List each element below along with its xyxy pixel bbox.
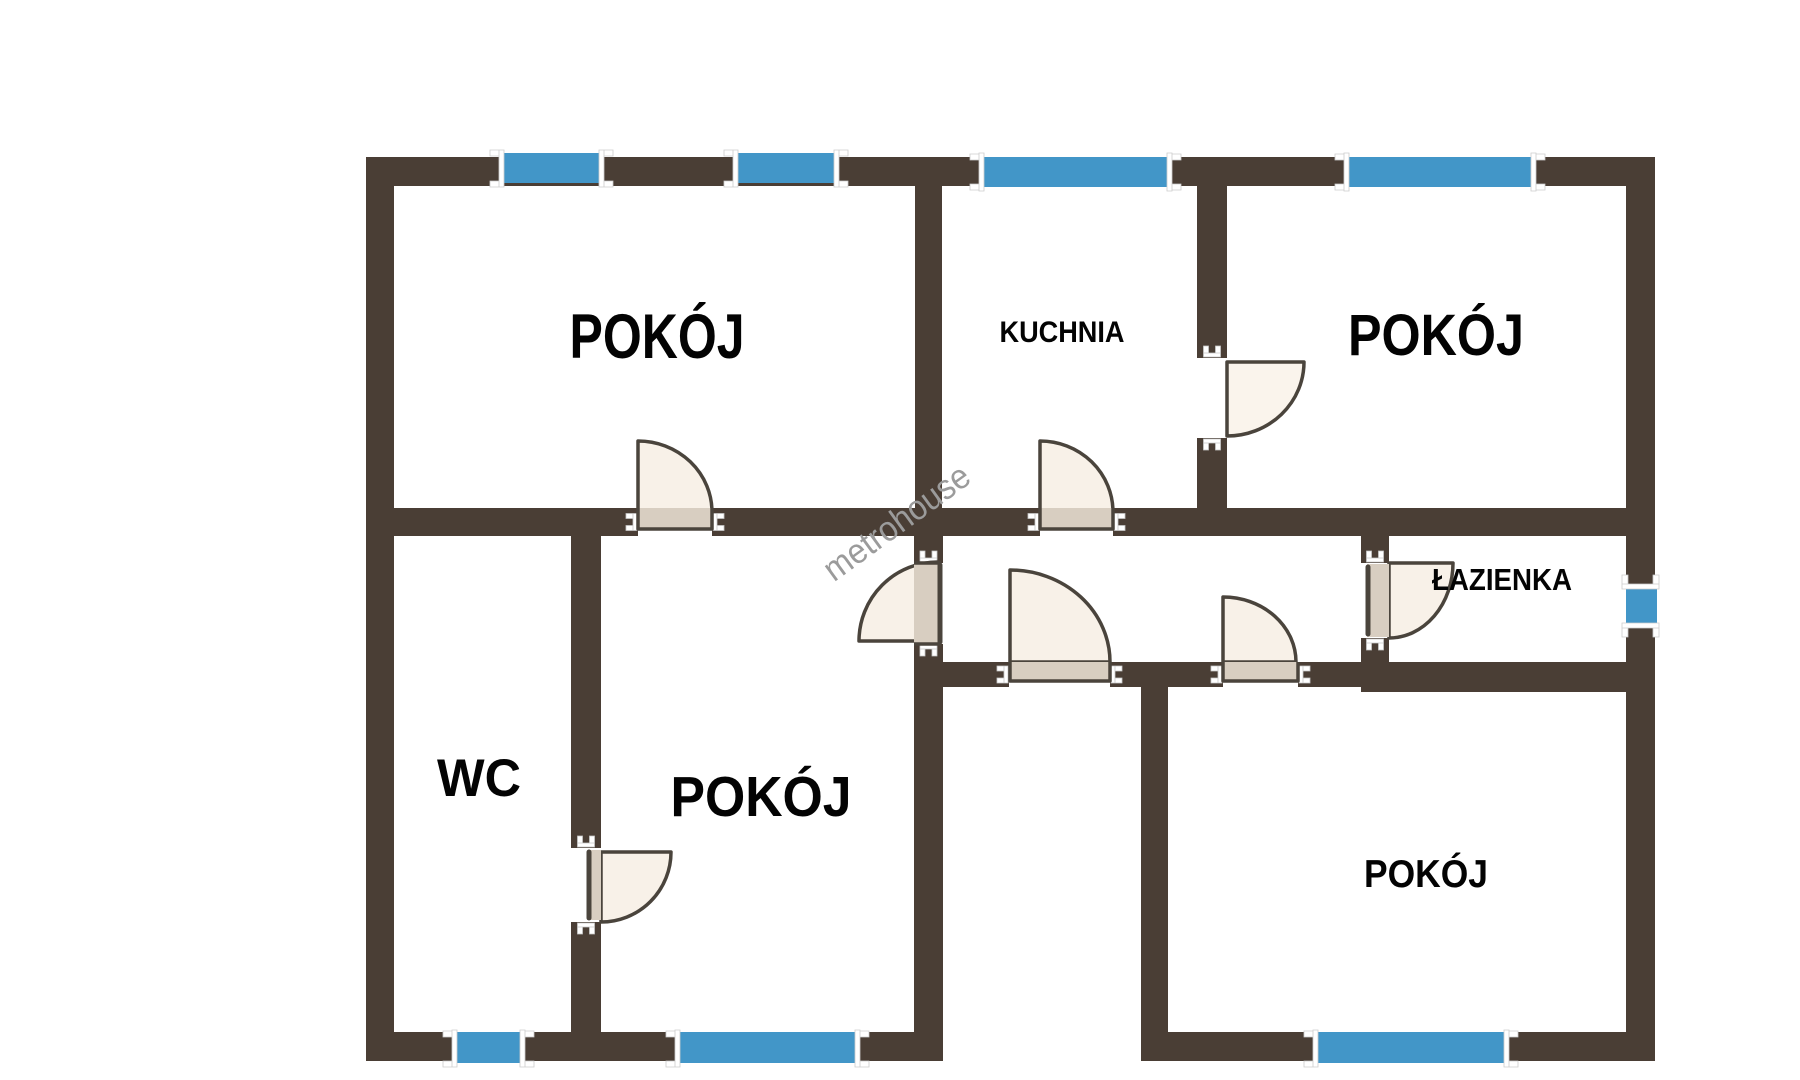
svg-text:POKÓJ: POKÓJ [570,302,745,372]
svg-text:POKÓJ: POKÓJ [671,765,852,829]
svg-text:WC: WC [437,749,521,808]
svg-text:POKÓJ: POKÓJ [1348,303,1524,368]
svg-text:ŁAZIENKA: ŁAZIENKA [1432,562,1572,597]
svg-text:KUCHNIA: KUCHNIA [1000,316,1125,349]
svg-text:POKÓJ: POKÓJ [1364,852,1488,896]
